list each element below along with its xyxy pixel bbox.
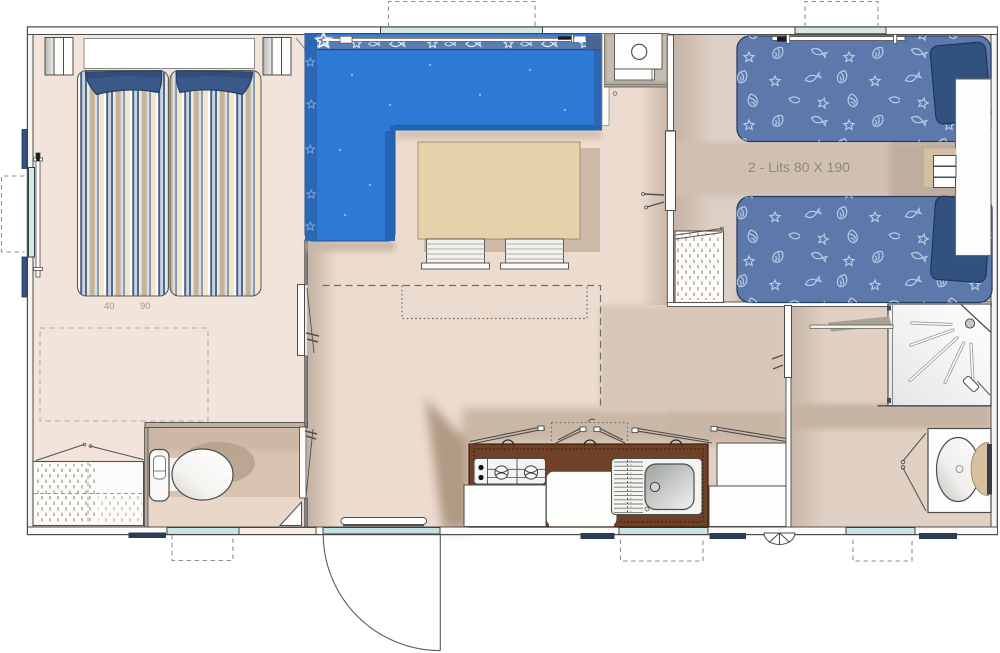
svg-text:90: 90 (140, 301, 151, 312)
svg-text:2 - Lits 80 X 190: 2 - Lits 80 X 190 (748, 159, 850, 175)
svg-text:40: 40 (104, 301, 115, 312)
